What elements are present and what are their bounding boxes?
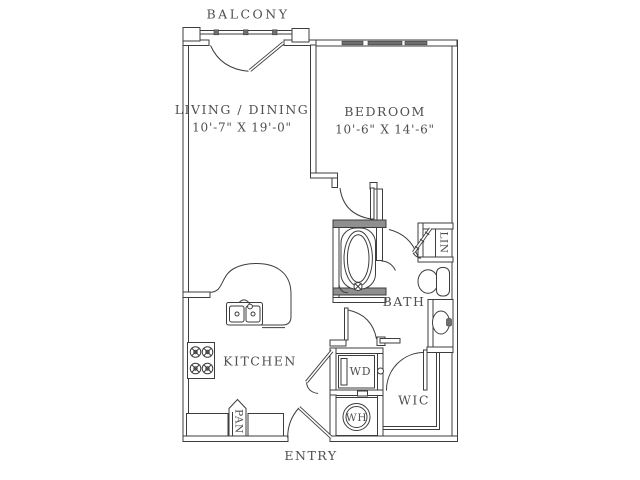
floor-plan-drawing: LIN WD: [0, 0, 640, 480]
bedroom-door: [340, 188, 374, 219]
kitchen-label: KITCHEN: [223, 354, 297, 369]
toilet-icon: [418, 268, 450, 297]
wic-shelving: [383, 353, 440, 430]
bedroom-windows: [342, 41, 427, 45]
bath-label: BATH: [383, 294, 426, 309]
entry-label: ENTRY: [284, 448, 337, 463]
vanity-sink-icon: [428, 300, 453, 348]
bedroom-dimensions: 10'-6" X 14'-6": [335, 123, 435, 137]
linen-label: LIN: [438, 231, 450, 253]
balcony-label: BALCONY: [206, 7, 289, 22]
wic-label: WIC: [398, 393, 430, 408]
bedroom-label: BEDROOM: [344, 104, 426, 119]
wic-walls: [378, 347, 454, 436]
floor-plan-page: LIN WD: [0, 0, 640, 480]
balcony-door: [211, 43, 284, 71]
outer-walls: [183, 40, 458, 442]
entry-door: [288, 408, 332, 439]
washer-dryer-label: WD: [350, 365, 372, 378]
wic-door: [386, 350, 427, 391]
bathtub-icon: [341, 228, 376, 291]
washer-dryer-closet: WD: [307, 348, 384, 396]
pantry-door: PAN: [229, 400, 246, 437]
living-dining-label: LIVING / DINING: [175, 102, 310, 117]
water-heater-closet: WH: [330, 395, 378, 436]
linen-closet: LIN: [413, 223, 453, 262]
stove-icon: [188, 343, 215, 379]
kitchen-sink-icon: [227, 300, 263, 325]
pantry-label: PAN: [233, 409, 245, 434]
living-dining-dimensions: 10'-7" X 19'-0": [192, 121, 292, 135]
water-heater-label: WH: [346, 412, 367, 424]
